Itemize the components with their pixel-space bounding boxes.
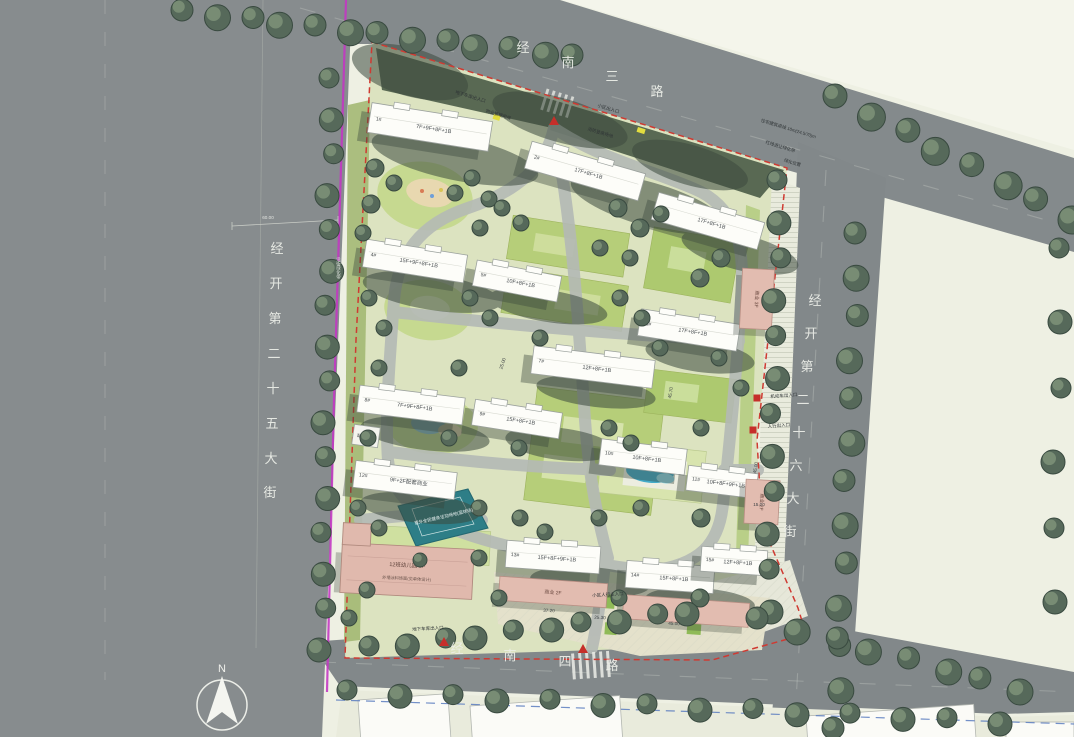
- tree-highlight: [501, 38, 513, 50]
- tree-highlight: [694, 421, 703, 430]
- building-wing: [643, 558, 659, 565]
- tree-highlight: [762, 405, 773, 416]
- commercial-label: 商业 2F: [544, 588, 562, 596]
- tree-highlight: [639, 695, 650, 706]
- kindergarten-wing: [342, 523, 371, 546]
- tree-highlight: [767, 368, 780, 381]
- tree-highlight: [313, 524, 324, 535]
- tree-highlight: [677, 604, 690, 617]
- tree-highlight: [414, 554, 422, 562]
- road-name-char: 第: [268, 311, 281, 326]
- tree-highlight: [361, 431, 370, 440]
- tree-highlight: [766, 483, 777, 494]
- tree-highlight: [309, 640, 322, 653]
- road-name-char: 四: [558, 654, 571, 669]
- tree-highlight: [593, 695, 606, 708]
- tree-highlight: [362, 291, 371, 300]
- tree-highlight: [363, 196, 373, 206]
- tree-highlight: [321, 261, 334, 274]
- road-name-char: 街: [263, 485, 276, 500]
- dimension-text: 45.00: [668, 621, 680, 627]
- tree-highlight: [845, 267, 859, 281]
- tree-highlight: [465, 171, 474, 180]
- tree-highlight: [772, 249, 783, 260]
- entrance-marker-icon: [750, 427, 757, 434]
- tree-highlight: [769, 172, 780, 183]
- tree-highlight: [317, 337, 330, 350]
- tree-highlight: [893, 709, 906, 722]
- road-name-char: 十: [792, 425, 805, 440]
- tree-highlight: [828, 629, 840, 641]
- tree-highlight: [841, 432, 855, 446]
- tree-highlight: [356, 226, 365, 235]
- tree-highlight: [824, 719, 836, 731]
- road-name-char: 路: [650, 84, 663, 99]
- tree-highlight: [624, 436, 633, 445]
- road-name-char: 经: [516, 40, 529, 55]
- road-name-char: 路: [605, 658, 618, 673]
- tree-highlight: [962, 154, 975, 167]
- tree-highlight: [321, 70, 332, 81]
- tree-highlight: [610, 200, 620, 210]
- tree-highlight: [244, 8, 256, 20]
- tree-highlight: [830, 680, 844, 694]
- tree-highlight: [313, 413, 326, 426]
- tree-highlight: [321, 372, 332, 383]
- tree-highlight: [786, 621, 800, 635]
- tree-highlight: [649, 606, 660, 617]
- tree-highlight: [841, 389, 853, 401]
- tree-highlight: [492, 591, 501, 600]
- tree-highlight: [761, 561, 772, 572]
- tree-highlight: [351, 501, 360, 510]
- tree-highlight: [317, 448, 328, 459]
- tree-highlight: [1051, 240, 1062, 251]
- road-name-char: 二: [267, 346, 280, 361]
- tree-highlight: [593, 241, 602, 250]
- road-name-char: 十: [266, 381, 279, 396]
- dimension-text: 37.20: [543, 608, 555, 614]
- building-number: 13#: [511, 552, 520, 559]
- tree-highlight: [387, 176, 396, 185]
- tree-highlight: [390, 686, 403, 699]
- road-name-char: 经: [808, 293, 821, 308]
- road-name-char: 大: [264, 451, 277, 466]
- site-plan: 1#7F+9F+8F+1B2#17F+8F+1B3#17F+8F+1B4#15F…: [0, 0, 1074, 737]
- tree-highlight: [712, 351, 721, 360]
- building-wing: [740, 545, 756, 552]
- tree-highlight: [690, 700, 703, 713]
- tree-highlight: [173, 1, 185, 13]
- tree-highlight: [899, 649, 911, 661]
- tree-highlight: [321, 110, 334, 123]
- tree-highlight: [513, 511, 522, 520]
- tree-highlight: [860, 105, 875, 120]
- tree-highlight: [342, 611, 351, 620]
- tree-highlight: [1025, 189, 1038, 202]
- tree-highlight: [825, 86, 838, 99]
- building-wing: [561, 540, 577, 547]
- tree-highlight: [857, 641, 871, 655]
- building: 15#12F+8F+1B: [691, 542, 769, 586]
- tree-highlight: [764, 291, 777, 304]
- tree-highlight: [463, 37, 477, 51]
- tree-highlight: [360, 583, 369, 592]
- commercial-label: 商业 3F: [753, 290, 761, 308]
- tree-highlight: [842, 705, 853, 716]
- tree-highlight: [533, 331, 542, 340]
- tree-highlight: [734, 381, 743, 390]
- tree-highlight: [693, 510, 703, 520]
- tree-highlight: [321, 221, 332, 232]
- tree-highlight: [692, 270, 702, 280]
- tree-highlight: [514, 216, 523, 225]
- road-name-char: 街: [783, 524, 796, 539]
- tree-highlight: [835, 471, 847, 483]
- tree-highlight: [541, 620, 554, 633]
- tree-highlight: [483, 311, 492, 320]
- tree-highlight: [923, 140, 938, 155]
- road-name-char: 大: [786, 491, 799, 506]
- play-equipment: [430, 194, 434, 198]
- tree-highlight: [762, 446, 775, 459]
- tree-highlight: [757, 524, 770, 537]
- tree-highlight: [713, 250, 723, 260]
- tree-highlight: [748, 609, 760, 621]
- entrance-marker-icon: [754, 395, 761, 402]
- tree-highlight: [361, 638, 372, 649]
- building-number: 7#: [538, 358, 544, 365]
- road-name-char: 经: [450, 641, 463, 656]
- tree-highlight: [613, 291, 622, 300]
- tree-highlight: [534, 44, 548, 58]
- road-name-char: 南: [561, 55, 574, 70]
- building-number: 10#: [605, 450, 614, 457]
- building-number: 15#: [706, 557, 715, 564]
- tree-highlight: [401, 29, 415, 43]
- tree-highlight: [632, 220, 642, 230]
- road-name-char: 三: [605, 69, 618, 84]
- road-west: [0, 0, 352, 737]
- tree-highlight: [745, 700, 756, 711]
- tree-highlight: [325, 145, 336, 156]
- tree-highlight: [898, 120, 911, 133]
- tree-highlight: [1050, 312, 1063, 325]
- annotation-text: 沿街绿化带: [336, 256, 342, 281]
- tree-highlight: [505, 622, 516, 633]
- tree-highlight: [487, 691, 500, 704]
- tree-highlight: [573, 614, 584, 625]
- tree-highlight: [634, 501, 643, 510]
- tree-highlight: [990, 714, 1003, 727]
- tree-highlight: [939, 709, 950, 720]
- tree-highlight: [317, 600, 328, 611]
- road-name-char: 开: [804, 326, 817, 341]
- tree-highlight: [442, 431, 451, 440]
- tree-highlight: [206, 7, 220, 21]
- road-name-char: 开: [269, 276, 282, 291]
- tree-highlight: [495, 201, 504, 210]
- tree-highlight: [538, 525, 547, 534]
- building-wing: [714, 543, 730, 550]
- tree-highlight: [592, 511, 601, 520]
- building-number: 12#: [359, 472, 368, 479]
- tree-highlight: [653, 341, 662, 350]
- tree-highlight: [767, 327, 778, 338]
- tree-highlight: [368, 23, 380, 35]
- tree-highlight: [827, 597, 841, 611]
- building-number: 8#: [364, 397, 370, 404]
- tree-highlight: [623, 251, 632, 260]
- tree-highlight: [339, 22, 353, 36]
- tree-highlight: [692, 590, 702, 600]
- road-name-char: 二: [796, 392, 809, 407]
- tree-highlight: [306, 16, 318, 28]
- tree-highlight: [317, 297, 328, 308]
- dimension-text: 15.00: [753, 502, 765, 507]
- tree-highlight: [635, 311, 644, 320]
- tree-highlight: [1045, 592, 1058, 605]
- tree-highlight: [938, 661, 952, 675]
- tree-highlight: [602, 421, 611, 430]
- tree-highlight: [339, 682, 350, 693]
- tree-highlight: [472, 501, 481, 510]
- tree-highlight: [463, 291, 472, 300]
- tree-highlight: [313, 564, 326, 577]
- tree-highlight: [452, 361, 461, 370]
- tree-highlight: [397, 636, 410, 649]
- tree-highlight: [439, 31, 451, 43]
- tree-highlight: [1046, 520, 1057, 531]
- compass-label: N: [218, 663, 226, 675]
- tree-highlight: [445, 686, 456, 697]
- tree-highlight: [837, 554, 849, 566]
- road-name-char: 五: [265, 416, 278, 431]
- tree-highlight: [787, 705, 800, 718]
- tree-highlight: [317, 185, 330, 198]
- road-name-char: 第: [800, 359, 813, 374]
- tree-highlight: [465, 628, 478, 641]
- tree-highlight: [848, 306, 860, 318]
- tree-highlight: [834, 515, 848, 529]
- tree-highlight: [317, 488, 330, 501]
- play-equipment: [439, 188, 443, 192]
- tree-highlight: [372, 521, 381, 530]
- tree-highlight: [377, 321, 386, 330]
- road-name-char: 南: [503, 648, 516, 663]
- tree-highlight: [472, 551, 481, 560]
- dimension-text: 25.30: [594, 615, 606, 621]
- road-name-char: 六: [789, 458, 802, 473]
- tree-highlight: [996, 174, 1011, 189]
- building-number: 14#: [631, 572, 640, 579]
- tree-highlight: [971, 669, 983, 681]
- tree-highlight: [473, 221, 482, 230]
- tree-highlight: [769, 213, 782, 226]
- tree-highlight: [1053, 380, 1064, 391]
- tree-highlight: [838, 350, 852, 364]
- tree-highlight: [654, 207, 663, 216]
- tree-highlight: [846, 224, 858, 236]
- tree-highlight: [372, 361, 381, 370]
- tree-highlight: [542, 691, 553, 702]
- dimension-text: 60.00: [262, 215, 274, 220]
- tree-highlight: [1009, 681, 1023, 695]
- tree-highlight: [448, 186, 457, 195]
- site-plan-svg: 1#7F+9F+8F+1B2#17F+8F+1B3#17F+8F+1B4#15F…: [0, 0, 1074, 737]
- tree-highlight: [268, 14, 282, 28]
- road-name-char: 经: [270, 241, 283, 256]
- tree-highlight: [367, 160, 377, 170]
- building-number: 11#: [692, 476, 701, 483]
- tree-highlight: [437, 630, 448, 641]
- tree-highlight: [609, 612, 622, 625]
- tree-highlight: [1043, 452, 1056, 465]
- tree-highlight: [512, 441, 521, 450]
- tree-highlight: [482, 192, 491, 201]
- play-equipment: [420, 189, 424, 193]
- building-wing: [524, 537, 540, 544]
